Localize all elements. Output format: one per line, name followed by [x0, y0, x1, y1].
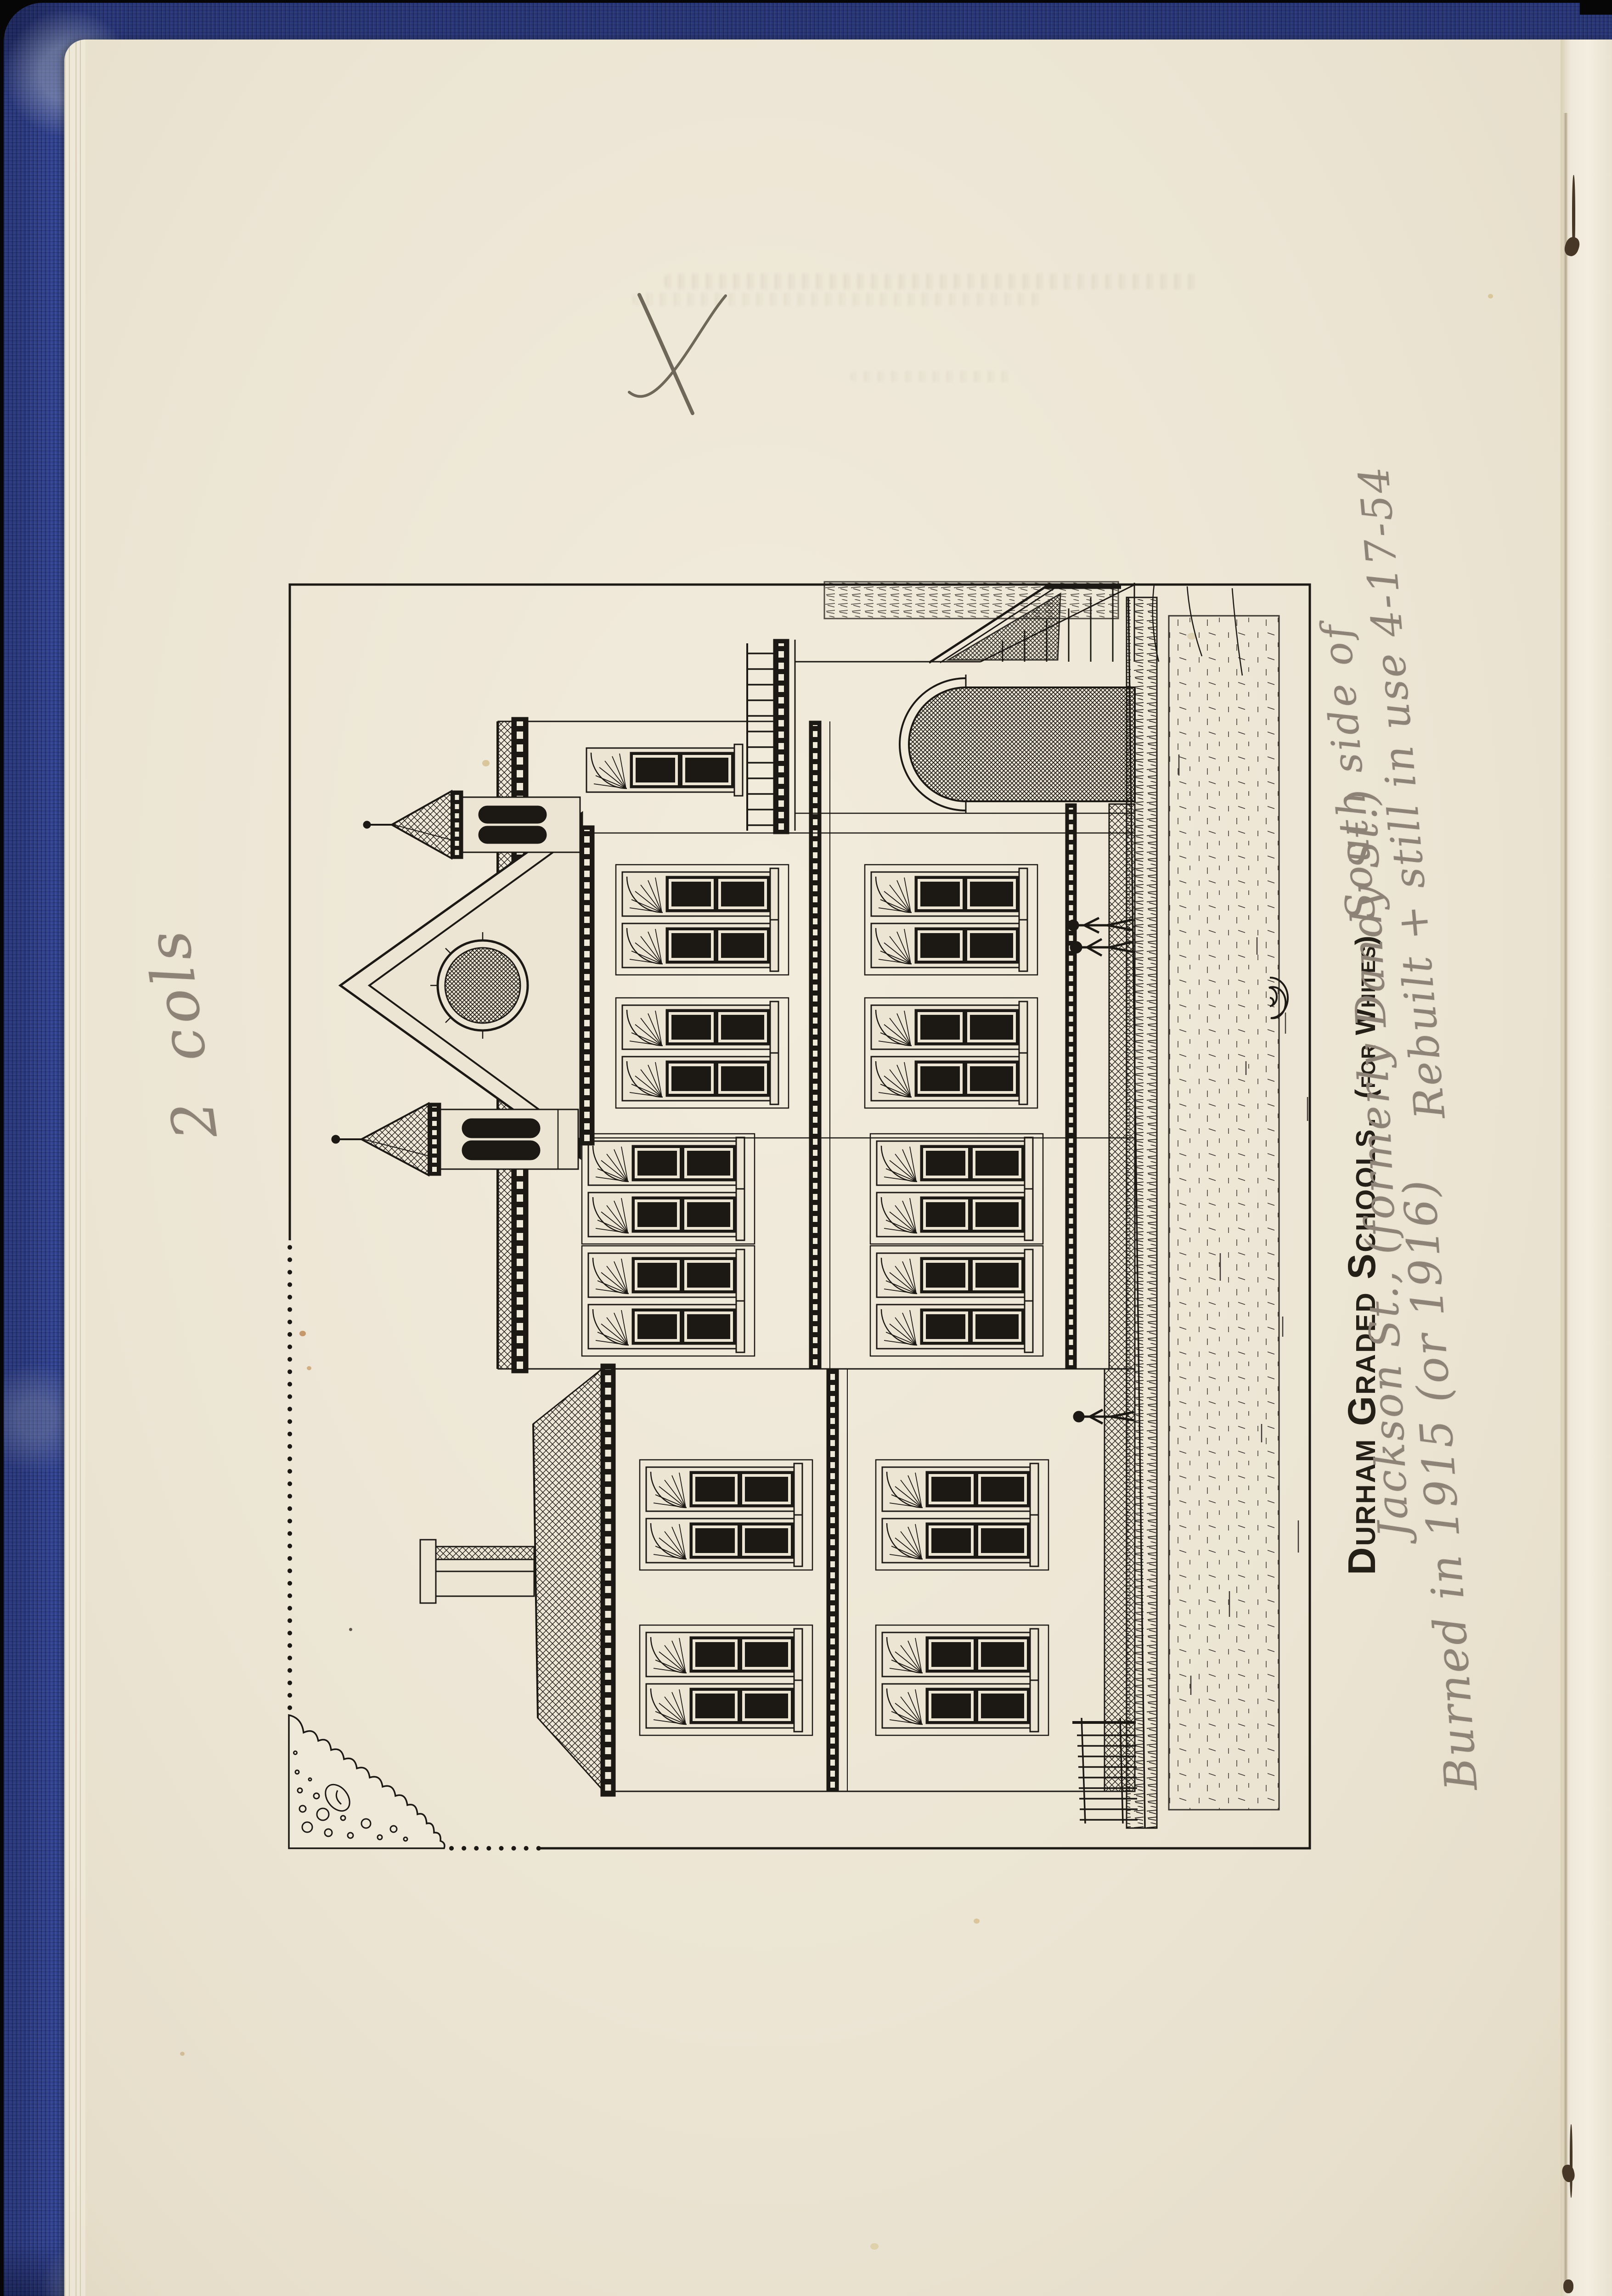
- entrance-porch: [747, 583, 1135, 833]
- building-engraving-svg: [282, 577, 1317, 1856]
- page-stack-edge: [64, 39, 85, 2296]
- gutter-crease: [1563, 113, 1568, 2290]
- ghost-text-smudge: [665, 274, 1198, 289]
- book-photo: { "figure": { "caption_title": "Durham G…: [0, 0, 1612, 2296]
- corner-ornament: [289, 1715, 445, 1848]
- foxing-spot: [870, 2243, 879, 2250]
- left-tower: [332, 1103, 578, 1175]
- binding-stitch: [1563, 2279, 1573, 2293]
- school-building: [332, 582, 1308, 1828]
- foxing-spot: [974, 1919, 980, 1924]
- binding-gutter: [1561, 39, 1612, 2296]
- right-tower: [364, 791, 580, 858]
- foxing-spot: [180, 2052, 185, 2056]
- left-wing: [420, 1364, 1135, 1796]
- margin-note-2cols: 2 cols: [148, 846, 240, 1140]
- center-gable: [340, 813, 1135, 1158]
- foxing-spot: [1488, 294, 1493, 298]
- binding-stitch: [1570, 2124, 1573, 2198]
- figure-plate: Durham Graded Schools. (for Whites) Sout…: [282, 340, 1513, 1856]
